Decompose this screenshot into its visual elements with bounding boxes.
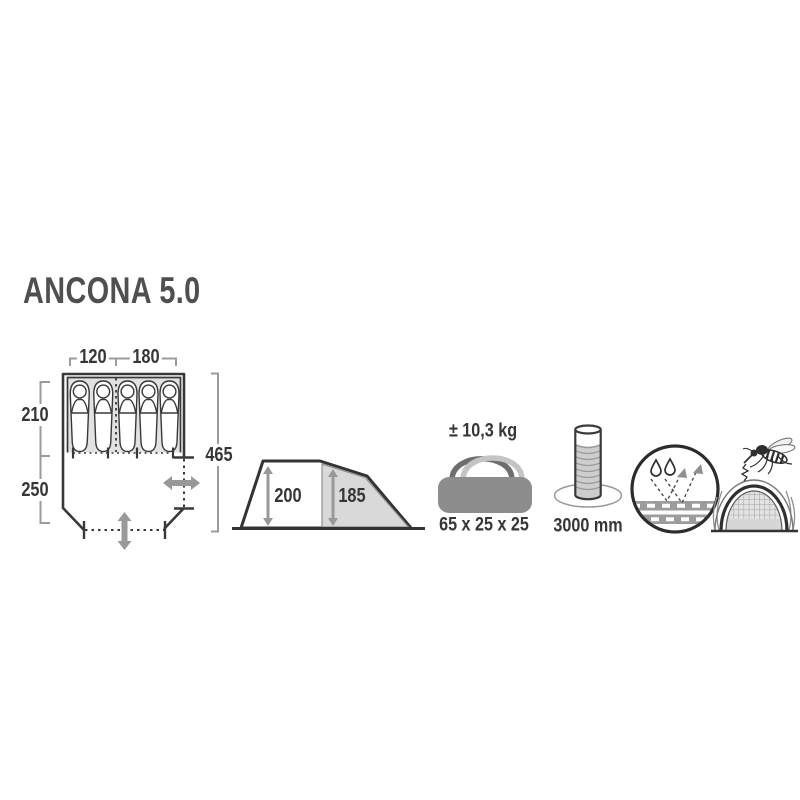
sleeping-bag [70,381,89,452]
sleeping-bags-right [118,381,179,452]
side-view [232,461,425,529]
floor-depth-porch-label: 250 [19,479,51,501]
column-top [575,426,600,434]
sleeping-bag [118,381,137,452]
diagram-svg [0,0,800,800]
carry-bag-icon [438,458,532,513]
floor-width-left-label: 120 [77,346,109,368]
sleeping-bag [139,381,158,452]
floor-total-length-label: 465 [203,444,235,466]
product-spec-sheet: ANCONA 5.0 120 180 210 250 465 200 185 ±… [0,0,800,800]
mosquito-icon [743,435,795,474]
mosquito-zigzag [742,464,748,481]
side-door-arrow [163,476,200,490]
floor-depth-sleeping-label: 210 [19,404,51,426]
fabric-band-top [630,501,720,511]
bag-body [438,477,532,513]
side-wall-diagonal [164,508,184,529]
product-title: ANCONA 5.0 [23,270,201,312]
weight-label: ± 10,3 kg [449,422,517,441]
height-rear-label: 185 [338,486,365,506]
sleeping-bag [94,381,113,452]
height-front-label: 200 [274,486,301,506]
pack-size-label: 65 x 25 x 25 [439,516,529,535]
floor-plan [41,359,219,551]
sleeping-bag [160,381,179,452]
water-column-label: 3000 mm [553,517,622,536]
floor-width-right-label: 180 [130,346,162,368]
mosquito-net-icon [711,435,798,531]
waterproof-fabric-icon [630,446,720,532]
water-column-icon [555,426,622,508]
